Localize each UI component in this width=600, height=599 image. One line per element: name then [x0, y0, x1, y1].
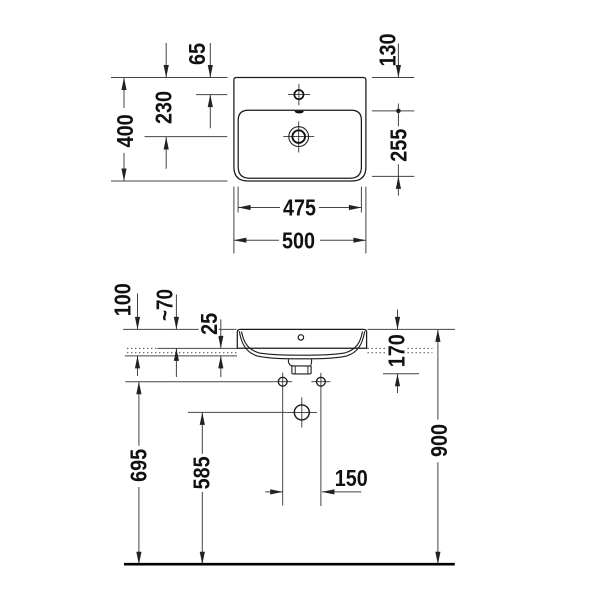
- svg-text:170: 170: [384, 334, 410, 367]
- svg-text:130: 130: [374, 34, 400, 67]
- svg-text:65: 65: [184, 43, 210, 65]
- svg-text:475: 475: [283, 194, 316, 220]
- svg-text:~70: ~70: [151, 289, 177, 321]
- svg-text:25: 25: [196, 313, 222, 335]
- svg-text:500: 500: [282, 228, 315, 254]
- svg-text:100: 100: [110, 283, 136, 316]
- svg-text:230: 230: [151, 91, 177, 124]
- svg-text:255: 255: [386, 129, 412, 162]
- svg-text:150: 150: [335, 465, 368, 491]
- svg-text:585: 585: [188, 456, 214, 489]
- svg-text:900: 900: [426, 424, 452, 457]
- svg-text:400: 400: [112, 114, 138, 147]
- svg-text:695: 695: [125, 449, 151, 482]
